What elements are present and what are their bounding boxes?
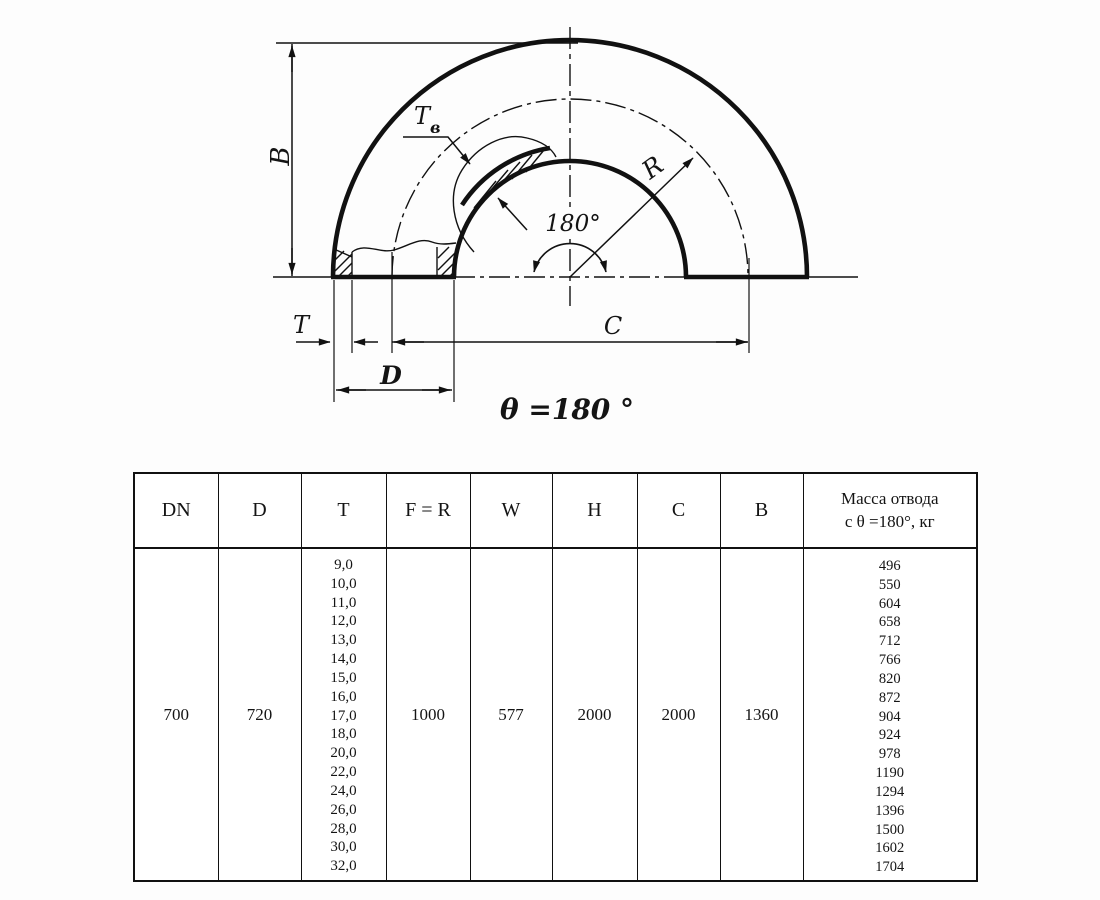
cell-dn: 700 <box>134 548 218 881</box>
left-cross-section <box>334 241 456 276</box>
tb-callout <box>403 137 527 230</box>
t-values-list: 9,0 10,0 11,0 12,0 13,0 14,0 15,0 16,0 1… <box>302 553 386 876</box>
col-header-fr: F = R <box>386 473 470 548</box>
cell-fr: 1000 <box>386 548 470 881</box>
mass-header-line2: с θ =180°, кг <box>804 511 977 534</box>
col-header-b: B <box>720 473 803 548</box>
detail-wall-arc <box>462 148 550 205</box>
cell-c: 2000 <box>637 548 720 881</box>
mass-header-line1: Масса отвода <box>804 488 977 511</box>
label-d: D <box>379 361 402 390</box>
col-header-w: W <box>470 473 552 548</box>
dimensions-table: DN D T F = R W H C B Масса отвода с θ =1… <box>133 472 978 882</box>
mass-values-list: 496 550 604 658 712 766 820 872 904 924 … <box>804 552 977 877</box>
pipe-bend-drawing: B T C D R <box>0 0 1100 462</box>
dim-t <box>296 280 378 402</box>
page: B T C D R <box>0 0 1100 900</box>
col-header-dn: DN <box>134 473 218 548</box>
section-hatch-left <box>334 251 352 276</box>
cell-t-values: 9,0 10,0 11,0 12,0 13,0 14,0 15,0 16,0 1… <box>301 548 386 881</box>
cell-b: 1360 <box>720 548 803 881</box>
col-header-mass: Масса отвода с θ =180°, кг <box>803 473 977 548</box>
break-wavy-line <box>352 241 456 252</box>
cell-w: 577 <box>470 548 552 881</box>
col-header-t: T <box>301 473 386 548</box>
label-c: C <box>604 312 622 340</box>
col-header-h: H <box>552 473 637 548</box>
cell-mass-values: 496 550 604 658 712 766 820 872 904 924 … <box>803 548 977 881</box>
label-b: B <box>266 146 296 166</box>
label-theta: θ =180 ° <box>500 393 634 426</box>
pipe-body <box>333 27 807 306</box>
wall-detail <box>453 137 556 252</box>
col-header-c: C <box>637 473 720 548</box>
label-t: T <box>293 311 311 339</box>
header-row: DN D T F = R W H C B Масса отвода с θ =1… <box>134 473 977 548</box>
label-tb-sub: в <box>430 118 441 137</box>
label-angle-180: 180° <box>545 211 600 237</box>
table-row: 700 720 9,0 10,0 11,0 12,0 13,0 14,0 15,… <box>134 548 977 881</box>
label-r: R <box>636 150 669 185</box>
cell-d: 720 <box>218 548 301 881</box>
cell-h: 2000 <box>552 548 637 881</box>
col-header-d: D <box>218 473 301 548</box>
